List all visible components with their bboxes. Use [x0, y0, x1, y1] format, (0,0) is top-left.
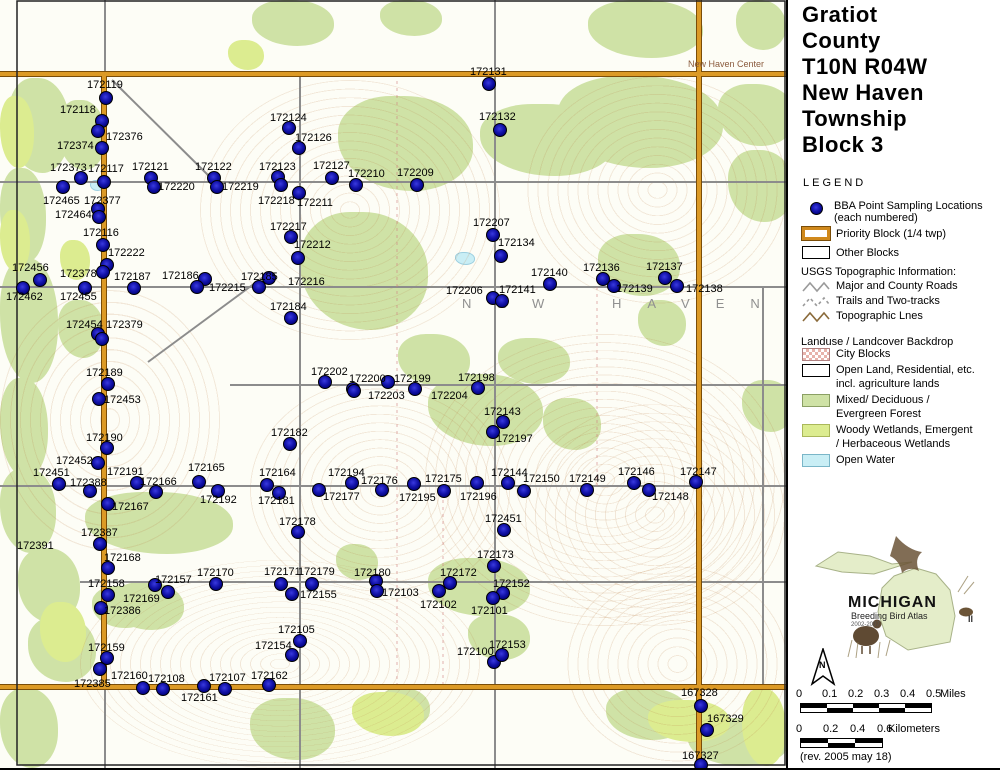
zigzag-brown-icon [802, 310, 830, 328]
landuse-item-label: Open Land, Residential, etc. [836, 364, 975, 377]
bba-point-label: 172210 [348, 168, 385, 180]
landuse-item-label: City Blocks [836, 348, 890, 361]
bba-point-label: 172136 [583, 262, 620, 274]
bba-point-dot [700, 723, 714, 737]
bba-point-dot [493, 123, 507, 137]
bba-point-dot [694, 699, 708, 713]
bba-point-dot [349, 178, 363, 192]
bba-point-label: 172184 [270, 301, 307, 313]
bba-point-label: 172218 [258, 195, 295, 207]
bba-point-dot [56, 180, 70, 194]
bba-point-dot [517, 484, 531, 498]
miles-scale-bar [800, 703, 932, 713]
bba-point-label: 172126 [295, 132, 332, 144]
bba-point-label: 172141 [499, 284, 536, 296]
bba-point-dot [325, 171, 339, 185]
page-title-line: New Haven [802, 80, 928, 106]
bba-point-label: 172179 [298, 566, 335, 578]
bba-point-label: 172451 [485, 513, 522, 525]
bba-point-dot [33, 273, 47, 287]
bba-point-dot [218, 682, 232, 696]
logo-title: MICHIGAN [848, 594, 937, 612]
bba-point-label: 172379 [106, 319, 143, 331]
bba-point-label: 172388 [70, 477, 107, 489]
bba-point-label: 172216 [288, 276, 325, 288]
bba-point-label: 172148 [652, 491, 689, 503]
logo-years: 2002-2007 [851, 622, 880, 628]
bba-point-dot [91, 124, 105, 138]
bba-point-label: 172378 [60, 268, 97, 280]
bba-point-label: 172204 [431, 390, 468, 402]
page-title: GratiotCountyT10N R04WNew HavenTownshipB… [802, 2, 928, 158]
place-name-label: New Haven Center [688, 59, 764, 69]
bba-point-label: 172116 [83, 227, 119, 239]
bba-point-label: 172157 [155, 574, 192, 586]
bba-point-dot [101, 377, 115, 391]
bba-point-label: 172181 [258, 495, 295, 507]
bba-point-label: 172143 [484, 406, 521, 418]
bba-point-label: 172171 [264, 566, 301, 578]
bba-point-label: 172127 [313, 160, 350, 172]
bba-point-label: 172154 [255, 640, 292, 652]
bba-point-label: 172219 [222, 181, 259, 193]
page-title-line: T10N R04W [802, 54, 928, 80]
bba-point-label: 172215 [209, 282, 246, 294]
legend-swatch-other [802, 246, 830, 259]
bba-point-label: 172173 [477, 549, 514, 561]
bba-point-label: 172452 [56, 455, 93, 467]
revision-note: (rev. 2005 may 18) [800, 751, 892, 763]
landuse-item-label: Open Water [836, 454, 895, 467]
bba-point-label: 172220 [158, 181, 195, 193]
bba-point-label: 172197 [496, 433, 533, 445]
landuse-swatch-city [802, 348, 830, 361]
bba-point-dot [52, 477, 66, 491]
bba-point-dot [101, 588, 115, 602]
bba-point-label: 167327 [682, 750, 719, 762]
bba-point-label: 172189 [86, 367, 123, 379]
bba-point-label: 172377 [84, 195, 121, 207]
bba-point-dot [97, 175, 111, 189]
bba-point-label: 172198 [458, 372, 495, 384]
bba-point-dot [410, 178, 424, 192]
map-canvas: NEW HAVENNew Haven Center172119172118172… [0, 0, 788, 768]
bba-point-dot [495, 294, 509, 308]
landuse-swatch-water [802, 454, 830, 467]
legend-bba-point-icon [810, 202, 823, 215]
bba-point-dot [96, 265, 110, 279]
scale-tick-label: 0 [796, 723, 802, 735]
legend-item-label: Other Blocks [836, 247, 899, 260]
page-title-line: Gratiot [802, 2, 928, 28]
bba-point-dot [347, 384, 361, 398]
bba-point-label: 172153 [489, 639, 526, 651]
scale-unit-label: Miles [940, 688, 966, 700]
bba-point-dot [93, 662, 107, 676]
bba-point-label: 172123 [259, 161, 296, 173]
page: NEW HAVENNew Haven Center172119172118172… [0, 0, 1000, 770]
north-arrow: N [810, 648, 838, 688]
page-title-line: County [802, 28, 928, 54]
bba-point-label: 172146 [618, 466, 655, 478]
bba-point-label: 172158 [88, 578, 125, 590]
bba-point-label: 172161 [181, 692, 218, 704]
bba-point-dot [91, 456, 105, 470]
bba-point-dot [161, 585, 175, 599]
bba-point-label: 172117 [88, 163, 124, 175]
bba-point-label: 172149 [569, 473, 606, 485]
bba-point-label: 172199 [394, 373, 431, 385]
bba-point-label: 172200 [349, 373, 386, 385]
bba-point-label: 172119 [87, 79, 123, 91]
bba-point-label: 172195 [399, 492, 436, 504]
bba-point-label: 172138 [686, 283, 723, 295]
township-name-label: NEW HAVEN [462, 296, 786, 311]
bba-point-dot [487, 559, 501, 573]
scale-tick-label: 0.5 [926, 688, 941, 700]
bba-point-label: 172206 [446, 285, 483, 297]
bba-point-label: 172169 [123, 593, 160, 605]
page-title-line: Block 3 [802, 132, 928, 158]
bba-point-label: 172222 [108, 247, 145, 259]
scale-tick-label: 0.1 [822, 688, 837, 700]
bba-point-label: 172209 [397, 167, 434, 179]
bba-point-dot [95, 141, 109, 155]
bba-point-label: 172118 [60, 104, 96, 116]
bba-point-label: 172172 [440, 567, 477, 579]
usgs-item-label: Trails and Two-tracks [836, 295, 940, 308]
bba-point-label: 172202 [311, 366, 348, 378]
bba-point-dot [209, 577, 223, 591]
legend-bba-point-sublabel: (each numbered) [834, 212, 918, 225]
bba-point-label: 172105 [278, 624, 315, 636]
usgs-item-label: Major and County Roads [836, 280, 958, 293]
bba-point-label: 172160 [111, 670, 148, 682]
bba-point-label: 172182 [271, 427, 308, 439]
logo-numeral: II [968, 614, 973, 624]
scale-unit-label: Kilometers [888, 723, 940, 735]
quail-icon [853, 626, 879, 646]
bba-point-dot [470, 476, 484, 490]
page-title-line: Township [802, 106, 928, 132]
usgs-heading: USGS Topographic Information: [801, 266, 956, 279]
bba-point-label: 172107 [209, 672, 246, 684]
bba-point-label: 172175 [425, 473, 462, 485]
bba-point-label: 172196 [460, 491, 497, 503]
scale-tick-label: 0.3 [874, 688, 889, 700]
bba-point-label: 172108 [148, 673, 185, 685]
bba-point-label: 172203 [368, 390, 405, 402]
bba-point-label: 172464 [55, 209, 92, 221]
bba-point-label: 172177 [323, 491, 360, 503]
bba-point-label: 172147 [680, 466, 717, 478]
landuse-swatch-forest [802, 394, 830, 407]
bba-point-label: 172121 [132, 161, 169, 173]
bba-point-label: 172167 [112, 501, 149, 513]
bba-point-label: 172150 [523, 473, 560, 485]
landuse-item-label: Evergreen Forest [836, 408, 921, 421]
bba-point-label: 172192 [200, 494, 237, 506]
bba-point-label: 172190 [86, 432, 123, 444]
bba-point-dot [670, 279, 684, 293]
bba-point-dot [580, 483, 594, 497]
bba-point-label: 172185 [241, 271, 278, 283]
bba-point-label: 172101 [471, 605, 508, 617]
bba-point-label: 172186 [162, 270, 199, 282]
bba-point-label: 172211 [297, 197, 333, 209]
bba-point-label: 172131 [470, 66, 507, 78]
bba-point-label: 172191 [107, 466, 144, 478]
bba-point-label: 172166 [140, 476, 177, 488]
bba-point-label: 172455 [60, 291, 97, 303]
bba-point-label: 172155 [300, 589, 337, 601]
km-scale-bar [800, 738, 883, 748]
usgs-item-label: Topographic Lnes [836, 310, 923, 323]
scale-tick-label: 0.2 [848, 688, 863, 700]
bba-point-label: 172217 [270, 221, 307, 233]
bba-point-dot [543, 277, 557, 291]
landuse-swatch-open [802, 364, 830, 377]
scale-tick-label: 0.4 [850, 723, 865, 735]
legend-panel: GratiotCountyT10N R04WNew HavenTownshipB… [788, 0, 1000, 768]
landuse-item-label: Woody Wetlands, Emergent [836, 424, 973, 437]
bba-point-label: 172180 [354, 567, 391, 579]
bba-point-dot [437, 484, 451, 498]
logo-subtitle: Breeding Bird Atlas [851, 611, 928, 621]
bba-point-dot [190, 280, 204, 294]
bba-point-label: 167328 [681, 687, 718, 699]
landuse-swatch-wetland [802, 424, 830, 437]
bba-point-dot [293, 634, 307, 648]
bba-point-label: 172207 [473, 217, 510, 229]
bba-point-dot [99, 91, 113, 105]
bba-point-label: 172194 [328, 467, 365, 479]
bba-point-label: 172137 [646, 261, 683, 273]
bba-point-label: 172159 [88, 642, 125, 654]
landuse-item-label: Mixed/ Deciduous / [836, 394, 930, 407]
bba-point-dot [192, 475, 206, 489]
bba-point-label: 172102 [420, 599, 457, 611]
bba-point-label: 172134 [498, 237, 535, 249]
bba-point-dot [95, 332, 109, 346]
scale-tick-label: 0.2 [823, 723, 838, 735]
bba-point-label: 167329 [707, 713, 744, 725]
bba-point-dot [432, 584, 446, 598]
bba-point-dot [284, 311, 298, 325]
bba-point-label: 172387 [81, 527, 118, 539]
north-label: N [819, 660, 826, 670]
bba-point-dot [407, 477, 421, 491]
bba-point-label: 172187 [114, 271, 151, 283]
bba-point-label: 172212 [294, 239, 331, 251]
bba-point-label: 172456 [12, 262, 49, 274]
scale-tick-label: 0.4 [900, 688, 915, 700]
bba-point-dot [497, 523, 511, 537]
bba-point-label: 172124 [270, 112, 307, 124]
bba-point-dot [627, 476, 641, 490]
bba-point-dot [274, 178, 288, 192]
bba-point-label: 172451 [33, 467, 70, 479]
bba-point-dot [92, 210, 106, 224]
bba-point-label: 172376 [106, 131, 143, 143]
bba-point-dot [283, 437, 297, 451]
bba-point-label: 172373 [50, 162, 87, 174]
landuse-item-label: incl. agriculture lands [836, 378, 939, 391]
landuse-item-label: / Herbaceous Wetlands [836, 438, 950, 451]
bba-point-dot [486, 591, 500, 605]
bba-point-label: 172454 [66, 319, 103, 331]
bba-point-label: 172178 [279, 516, 316, 528]
bba-point-label: 172164 [259, 467, 296, 479]
bba-point-label: 172462 [6, 291, 43, 303]
bba-point-label: 172391 [17, 540, 54, 552]
bba-point-dot [494, 249, 508, 263]
bba-point-label: 172453 [104, 394, 141, 406]
bba-point-dot [93, 537, 107, 551]
legend-heading: LEGEND [803, 177, 866, 190]
bba-point-dot [482, 77, 496, 91]
bba-point-label: 172385 [74, 678, 111, 690]
legend-swatch-priority [802, 227, 830, 240]
bba-point-label: 172465 [43, 195, 80, 207]
bba-point-label: 172103 [382, 587, 419, 599]
bba-point-label: 172170 [197, 567, 234, 579]
bba-point-dot [127, 281, 141, 295]
bba-point-label: 172165 [188, 462, 225, 474]
bba-point-label: 172139 [616, 283, 653, 295]
bba-point-label: 172152 [493, 578, 530, 590]
bba-point-label: 172122 [195, 161, 232, 173]
bba-point-label: 172132 [479, 111, 516, 123]
michigan-bba-logo: MICHIGAN Breeding Bird Atlas 2002-2007 I… [808, 532, 993, 662]
bba-point-label: 172386 [104, 605, 141, 617]
bba-point-label: 172176 [361, 475, 398, 487]
bba-point-label: 172374 [57, 140, 94, 152]
bba-point-dot [291, 251, 305, 265]
bba-point-label: 172168 [104, 552, 141, 564]
bba-point-label: 172140 [531, 267, 568, 279]
bba-point-dot [285, 587, 299, 601]
bba-point-label: 172162 [251, 670, 288, 682]
scale-tick-label: 0 [796, 688, 802, 700]
legend-item-label: Priority Block (1/4 twp) [836, 228, 946, 241]
